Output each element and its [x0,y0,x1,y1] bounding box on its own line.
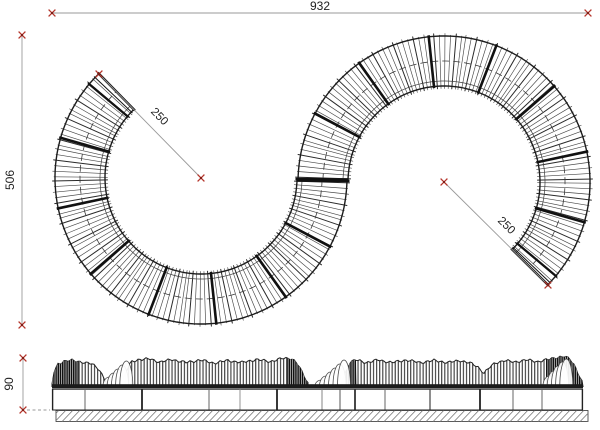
ground-hatch [48,410,598,421]
dimension-seat-height-label: 90 [2,377,16,391]
elevation-plinth [52,384,583,410]
dimension-overall-width-label: 932 [310,0,330,13]
dimension-right-radius-label: 250 [495,215,517,237]
drawing-canvas: 932 506 250 250 90 [0,0,600,430]
bench-technical-drawing: 932 506 250 250 90 [0,0,600,430]
dimension-left-radius-label: 250 [148,106,170,128]
plan-view [53,34,593,327]
dimension-overall-depth-label: 506 [3,170,17,190]
dimension-lines [22,13,588,410]
dimension-markers [19,10,592,414]
elevation-view [48,356,598,421]
